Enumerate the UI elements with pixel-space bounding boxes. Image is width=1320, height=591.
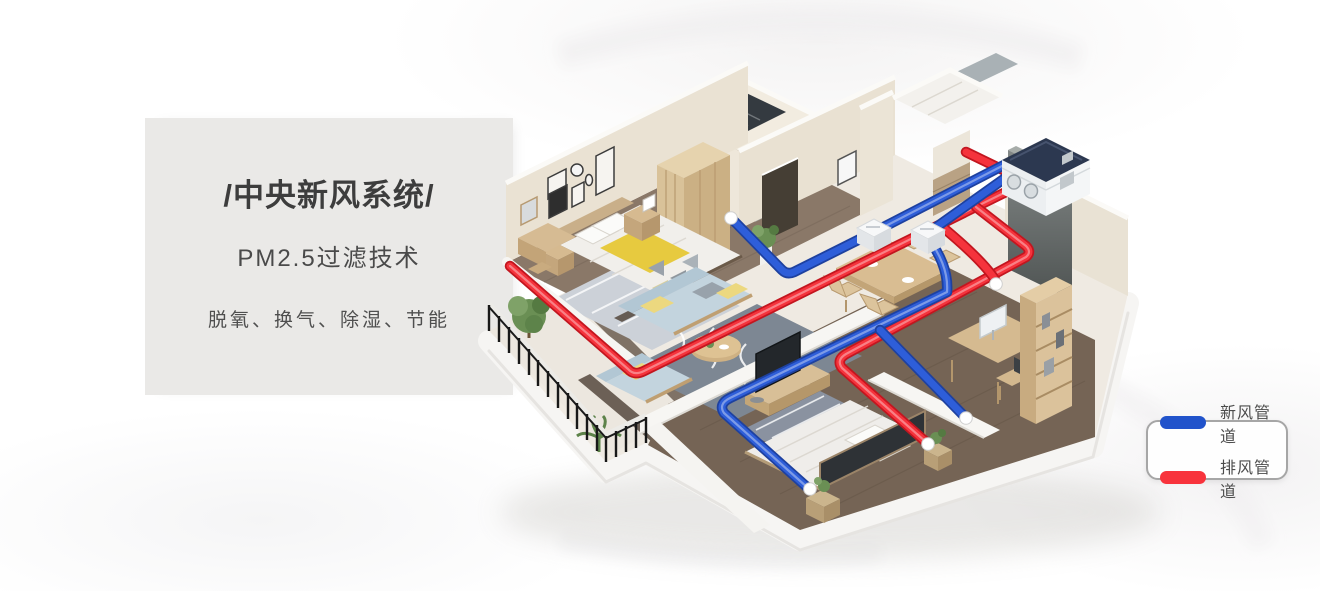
legend-item-exhaust: 排风管道 [1148, 454, 1286, 502]
vent-outlet [990, 278, 1003, 291]
vent-outlet [922, 438, 935, 451]
legend-label: 排风管道 [1220, 454, 1286, 502]
vent-outlet [804, 483, 817, 496]
apartment-illustration [0, 0, 1320, 591]
vent-outlet [725, 212, 738, 225]
legend-item-fresh-air: 新风管道 [1148, 399, 1286, 447]
fresh-air-swatch [1160, 416, 1206, 429]
bookshelf [1020, 277, 1072, 424]
banner: { "panel": { "title": "/中央新风系统/", "subti… [0, 0, 1320, 591]
pipe-legend: 新风管道 排风管道 [1146, 420, 1288, 480]
exhaust-swatch [1160, 471, 1206, 484]
legend-label: 新风管道 [1220, 399, 1286, 447]
vent-outlet [960, 412, 973, 425]
